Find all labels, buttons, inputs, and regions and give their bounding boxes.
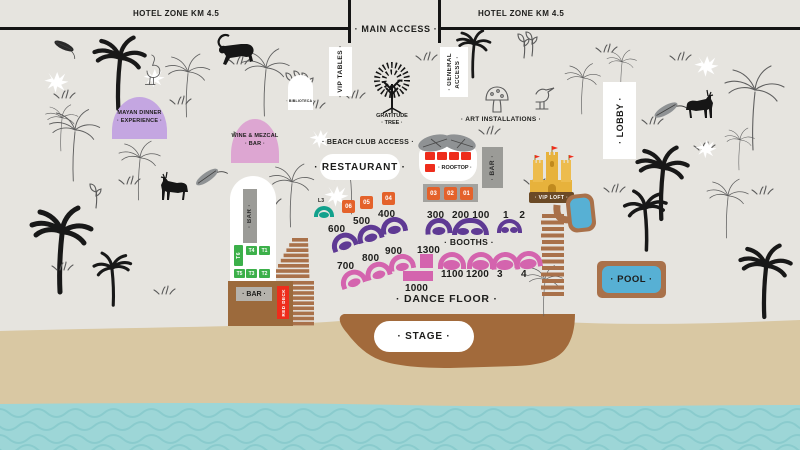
booth-1300[interactable] (420, 254, 433, 268)
vip-loft-label: · VIP LOFT · (535, 195, 568, 201)
sparkle-icon (144, 69, 165, 87)
wine-mezcal-area: WINE & MEZCAL · BAR · (231, 119, 279, 163)
leaf-icon (52, 38, 80, 59)
grass-icon (479, 126, 500, 134)
palm-sketch-icon (242, 49, 289, 116)
bird-icon (536, 88, 554, 109)
red-deck-label: RED DECK (281, 289, 286, 317)
booth-1100-label: 1100 (441, 269, 464, 280)
booth-L3[interactable] (314, 206, 334, 217)
booth-200-100[interactable] (452, 218, 489, 235)
table-T1-label: T1 (262, 248, 268, 254)
table-T6-label: T6 (236, 252, 242, 259)
lobby-sign: · LOBBY · (603, 82, 636, 159)
rooftop-leaves-icon (415, 131, 481, 153)
palm-sketch-icon (46, 105, 78, 151)
rooftop-bar-sign: · BAR · (482, 147, 503, 188)
vip-tables-label: · VIP TABLES · (337, 45, 344, 98)
palm-sketch-icon (50, 110, 100, 181)
biblioteca-arch: · BIBLIOTECA · (288, 75, 313, 110)
sparkle-icon (694, 56, 718, 77)
hotel-zone-right-label: HOTEL ZONE KM 4.5 (478, 9, 564, 18)
table-04[interactable]: 04 (382, 192, 395, 205)
stage-sign: · STAGE · (374, 321, 474, 352)
stairs-left-upper (272, 238, 309, 278)
vip-loft-castle-icon (527, 146, 575, 194)
leaf-icon (652, 97, 686, 125)
deer-icon (161, 172, 188, 200)
road-left (0, 27, 349, 30)
restaurant-sign: · RESTAURANT · (320, 154, 400, 180)
grass-icon (596, 44, 617, 52)
main-access-wall-right (438, 0, 441, 43)
rooftop-structure: · ROOFTOP · (419, 145, 477, 181)
palm-sketch-icon (707, 179, 748, 238)
lobby-label: · LOBBY · (615, 97, 625, 144)
table-T5-label: T5 (237, 271, 243, 277)
rooftop-table[interactable] (461, 152, 471, 160)
monkey-icon (219, 35, 254, 65)
leaf-icon (194, 162, 228, 191)
grass-icon (170, 96, 191, 104)
stairs-right (541, 214, 564, 296)
booth-L3-label: L3 (318, 198, 324, 204)
gratitude-tree-label-2: · TREE · (361, 120, 423, 126)
table-T4-label: T4 (249, 248, 255, 254)
biblioteca-label: · BIBLIOTECA · (286, 99, 314, 103)
palm-icon (638, 148, 688, 219)
wine-mezcal-label-2: · BAR · (245, 141, 265, 149)
table-03[interactable]: 03 (427, 187, 440, 200)
palm-sketch-icon (527, 266, 562, 316)
rooftop-table[interactable] (425, 164, 435, 172)
mushroom-icon (486, 87, 508, 112)
palm-icon (94, 253, 131, 305)
booth-3-label: 3 (497, 269, 503, 280)
deck-bar-sign: · BAR · (236, 287, 272, 301)
grass-icon (752, 186, 773, 194)
road-right (439, 27, 800, 30)
table-05-label: 05 (363, 200, 370, 206)
sprout-icon (90, 184, 101, 208)
sparkle-icon (696, 140, 717, 158)
table-T6[interactable]: T6 (234, 245, 243, 266)
table-T1[interactable]: T1 (259, 246, 270, 255)
table-03-label: 03 (430, 191, 437, 197)
palm-sketch-icon (725, 128, 755, 170)
booth-1-2[interactable] (497, 219, 522, 233)
red-deck-tag: RED DECK (277, 286, 289, 319)
grass-icon (694, 142, 715, 150)
grass-icon (416, 52, 437, 60)
table-T2[interactable]: T2 (259, 269, 270, 278)
art-installations-label: · ART INSTALLATIONS · (456, 116, 546, 123)
main-access-label: · MAIN ACCESS · (352, 24, 440, 34)
grass-icon (154, 286, 175, 294)
palm-icon (625, 191, 666, 250)
oval-bar-sign: · BAR · (243, 189, 257, 243)
palm-sketch-icon (119, 141, 160, 200)
table-T3-label: T3 (249, 271, 255, 277)
gratitude-tree-label-1: GRATITUDE (361, 113, 423, 119)
booth-1100[interactable] (438, 252, 466, 269)
grass-icon (54, 90, 75, 98)
palm-sketch-icon (725, 66, 784, 150)
water-area (0, 403, 800, 450)
mayan-dinner-label-1: MAYAN DINNER (117, 110, 161, 118)
booth-1000[interactable] (403, 271, 433, 281)
booths-label: · BOOTHS · (443, 237, 495, 247)
table-05[interactable]: 05 (360, 196, 373, 209)
grass-icon (642, 116, 663, 124)
table-06-label: 06 (345, 204, 352, 210)
booth-400[interactable] (379, 215, 408, 235)
booth-900[interactable] (387, 252, 416, 272)
sprout-icon (526, 32, 537, 56)
grass-icon (229, 56, 250, 64)
grass-icon (670, 52, 691, 60)
small-pool (565, 193, 597, 234)
general-access-label-1: · GENERAL (447, 53, 453, 91)
vip-tables-sign: · VIP TABLES · (329, 47, 352, 96)
table-01-label: 01 (463, 191, 470, 197)
mayan-dinner-area: MAYAN DINNER · EXPERIENCE · (112, 97, 167, 139)
deer-icon (686, 90, 713, 118)
table-T5[interactable]: T5 (234, 269, 245, 278)
deck-bar-label: · BAR · (242, 291, 266, 298)
booth-300[interactable] (424, 217, 452, 235)
table-T3[interactable]: T3 (246, 269, 257, 278)
booth-4[interactable] (513, 249, 543, 270)
palm-icon (741, 246, 791, 317)
grass-icon (119, 176, 140, 184)
hotel-zone-left-label: HOTEL ZONE KM 4.5 (133, 9, 219, 18)
beach-club-access-label: · BEACH CLUB ACCESS · (322, 139, 414, 146)
sparkle-icon (44, 72, 68, 93)
general-access-sign: · GENERAL ACCESS · (440, 47, 468, 97)
pool-label: · POOL · (610, 274, 652, 285)
main-pool: · POOL · (597, 261, 666, 298)
gratitude-tree-icon (377, 65, 407, 113)
oval-bar-label: · BAR · (247, 204, 253, 228)
rooftop-table[interactable] (425, 152, 435, 160)
rooftop-table[interactable] (449, 152, 459, 160)
main-access-wall-left (348, 0, 351, 43)
rooftop-bar-label: · BAR · (489, 155, 496, 181)
table-01[interactable]: 01 (460, 187, 473, 200)
general-access-label-2: ACCESS · (455, 56, 461, 89)
stage-label: · STAGE · (397, 331, 450, 342)
wave-icon (0, 409, 800, 450)
table-T2-label: T2 (262, 271, 268, 277)
grass-icon (604, 184, 625, 192)
palm-sketch-icon (270, 164, 314, 227)
palm-sketch-icon (166, 54, 210, 117)
dance-floor-label: · DANCE FLOOR · (396, 293, 496, 305)
wine-mezcal-label-1: WINE & MEZCAL (232, 133, 279, 141)
grass-icon (52, 262, 73, 270)
rooftop-label: · ROOFTOP · (436, 165, 474, 171)
table-06[interactable]: 06 (342, 200, 355, 213)
palm-icon (32, 208, 91, 292)
table-02-label: 02 (447, 191, 454, 197)
booth-1200-label: 1200 (466, 269, 489, 280)
venue-map: HOTEL ZONE KM 4.5 HOTEL ZONE KM 4.5 · MA… (0, 0, 800, 450)
restaurant-label: · RESTAURANT · (314, 162, 406, 173)
table-T4[interactable]: T4 (246, 246, 257, 255)
booth-4-label: 4 (521, 269, 527, 280)
heron-icon (145, 55, 159, 85)
mayan-dinner-label-2: · EXPERIENCE · (117, 118, 162, 126)
table-04-label: 04 (385, 196, 392, 202)
table-02[interactable]: 02 (444, 187, 457, 200)
sprout-icon (518, 34, 529, 58)
palm-sketch-icon (565, 64, 600, 114)
rooftop-table[interactable] (437, 152, 447, 160)
